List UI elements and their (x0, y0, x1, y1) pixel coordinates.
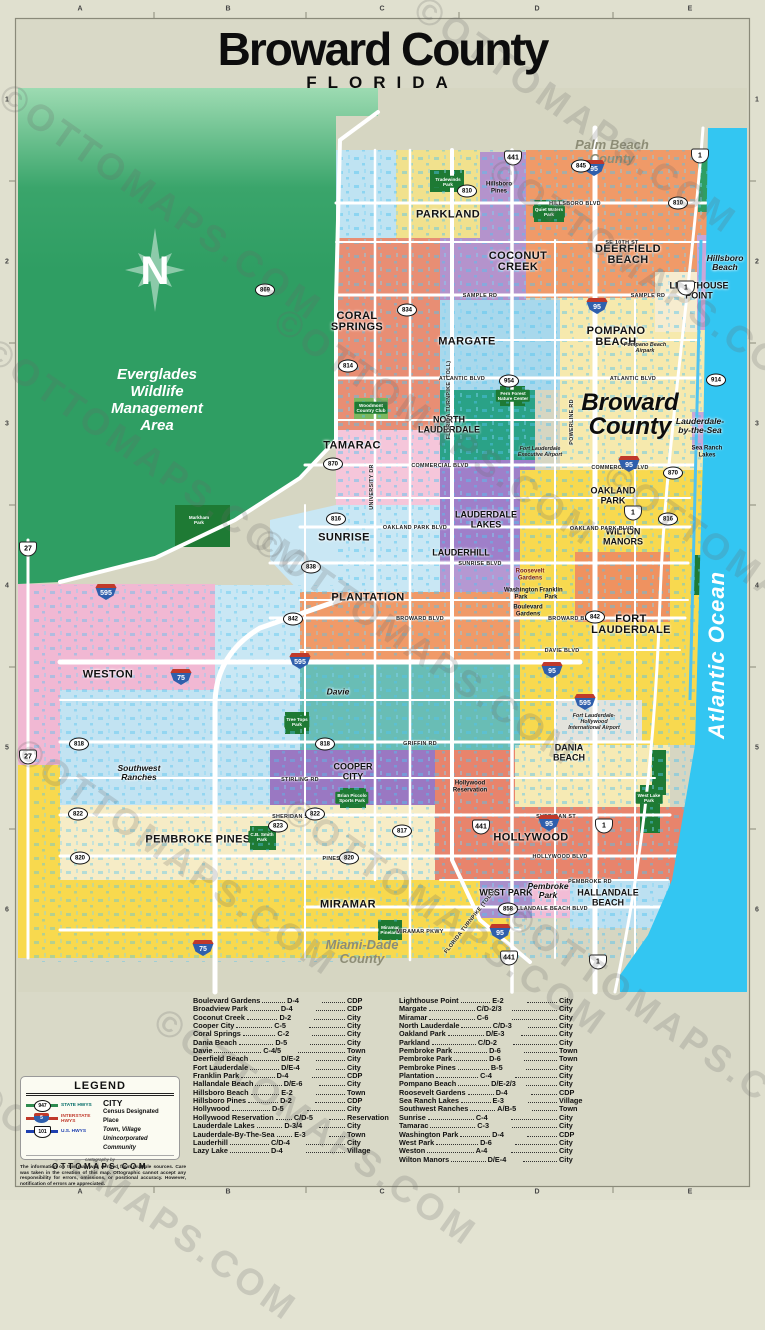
legend-road-types: 947 STATE HWYS 5 INTERSTATE HWYS 101 U.S… (26, 1099, 100, 1153)
page-subtitle: FLORIDA (0, 73, 765, 93)
legend-road-line: 5 (26, 1117, 58, 1120)
index-row: Boulevard Gardens D-4 CDP (193, 996, 393, 1004)
leader-dots (515, 1144, 557, 1145)
leader-dots (527, 1002, 557, 1003)
index-row: Southwest Ranches A/B-5 Town (399, 1104, 605, 1112)
leader-dots (511, 1119, 557, 1120)
leader-dots (513, 1044, 557, 1045)
index-row: Pembroke Park D-6 Town (399, 1054, 605, 1062)
leader-dots (241, 1077, 274, 1078)
leader-dots (432, 1044, 476, 1045)
leader-dots (436, 1077, 478, 1078)
leader-dots (312, 1035, 345, 1036)
leader-dots (528, 1027, 557, 1028)
leader-dots (512, 1019, 557, 1020)
leader-dots (461, 1027, 490, 1028)
highway-shield-icon: 5 (34, 1113, 49, 1123)
index-row: Hallandale Beach D/E-6 City (193, 1079, 393, 1087)
legend-road-line: 101 (26, 1130, 58, 1133)
leader-dots (329, 1119, 345, 1120)
leader-dots (436, 1144, 478, 1145)
leader-dots (276, 1119, 292, 1120)
leader-dots (515, 1077, 557, 1078)
leader-dots (230, 1152, 269, 1153)
leader-dots (451, 1161, 485, 1162)
leader-dots (531, 1094, 557, 1095)
legend-box: LEGEND 947 STATE HWYS 5 INTERSTATE HWYS (20, 1076, 180, 1160)
leader-dots (532, 1110, 557, 1111)
index-row: Sunrise C-4 City (399, 1113, 605, 1121)
legend-place-types: CITY Census Designated Place Town, Villa… (100, 1099, 174, 1153)
index-row: West Park D-6 City (399, 1138, 605, 1146)
leader-dots (319, 1127, 345, 1128)
index-row: Parkland C/D-2 City (399, 1038, 605, 1046)
leader-dots (512, 1010, 558, 1011)
leader-dots (310, 1044, 345, 1045)
leader-dots (454, 1060, 487, 1061)
leader-dots (526, 1069, 557, 1070)
leader-dots (309, 1027, 345, 1028)
index-row: Lazy Lake D-4 Village (193, 1146, 393, 1154)
leader-dots (429, 1010, 475, 1011)
leader-dots (248, 1102, 278, 1103)
legend-place-type: Census Designated Place (103, 1108, 174, 1126)
leader-dots (214, 1052, 261, 1053)
index-grid-ref: D/E-4 (488, 1155, 521, 1164)
legend-place-type: CITY (103, 1099, 174, 1108)
disclaimer-text: The information on this map was derived … (20, 1165, 186, 1188)
leader-dots (247, 1019, 278, 1020)
legend-road-row: 101 U.S. HWYS (26, 1125, 100, 1138)
index-row: Wilton Manors D/E-4 City (399, 1155, 605, 1163)
index-place-type: City (559, 1155, 605, 1164)
leader-dots (312, 1077, 345, 1078)
place-index-left: Boulevard Gardens D-4 CDP Broadview Park… (193, 996, 393, 1155)
legend-place-type: Unincorporated Community (103, 1135, 174, 1153)
leader-dots (316, 1069, 345, 1070)
index-row: Tamarac C-3 City (399, 1121, 605, 1129)
leader-dots (232, 1110, 270, 1111)
leader-dots (307, 1110, 345, 1111)
leader-dots (255, 1085, 281, 1086)
legend-road-label: INTERSTATE HWYS (61, 1114, 100, 1124)
legend-road-row: 947 STATE HWYS (26, 1099, 100, 1112)
index-row: Deerfield Beach D/E-2 City (193, 1054, 393, 1062)
index-row: Lauderhill C/D-4 City (193, 1138, 393, 1146)
leader-dots (250, 1060, 279, 1061)
leader-dots (454, 1052, 487, 1053)
leader-dots (277, 1136, 293, 1137)
leader-dots (306, 1144, 345, 1145)
index-row: Roosevelt Gardens D-4 CDP (399, 1088, 605, 1096)
leader-dots (511, 1152, 557, 1153)
leader-dots (428, 1119, 474, 1120)
leader-dots (523, 1161, 557, 1162)
legend-body: 947 STATE HWYS 5 INTERSTATE HWYS 101 U.S… (26, 1099, 174, 1153)
leader-dots (458, 1085, 489, 1086)
index-place-name: Wilton Manors (399, 1155, 449, 1164)
leader-dots (315, 1102, 345, 1103)
index-row: Miramar C-6 City (399, 1013, 605, 1021)
leader-dots (316, 1010, 345, 1011)
leader-dots (468, 1094, 494, 1095)
leader-dots (230, 1144, 269, 1145)
index-row: Pembroke Pines B-5 City (399, 1063, 605, 1071)
leader-dots (319, 1085, 345, 1086)
index-row: Broadview Park D-4 CDP (193, 1004, 393, 1012)
index-row: Coral Springs C-2 City (193, 1029, 393, 1037)
index-row: Hillsboro Beach E-2 Town (193, 1088, 393, 1096)
index-place-name: Lazy Lake (193, 1146, 228, 1155)
leader-dots (251, 1094, 280, 1095)
leader-dots (521, 1035, 557, 1036)
index-row: Pembroke Park D-6 Town (399, 1046, 605, 1054)
index-place-type: Village (347, 1146, 393, 1155)
leader-dots (461, 1102, 490, 1103)
index-row: Cooper City C-5 City (193, 1021, 393, 1029)
index-row: Plantation C-4 City (399, 1071, 605, 1079)
index-row: North Lauderdale C/D-3 City (399, 1021, 605, 1029)
legend-road-label: U.S. HWYS (61, 1129, 86, 1134)
leader-dots (316, 1060, 345, 1061)
leader-dots (524, 1060, 557, 1061)
texture-east (336, 150, 708, 960)
index-row: Hollywood D-5 City (193, 1104, 393, 1112)
leader-dots (528, 1102, 557, 1103)
leader-dots (526, 1085, 557, 1086)
leader-dots (298, 1052, 345, 1053)
leader-dots (427, 1152, 473, 1153)
index-row: Hollywood Reservation C/D-5 Reservation (193, 1113, 393, 1121)
index-row: Dania Beach D-5 City (193, 1038, 393, 1046)
legend-road-line: 947 (26, 1104, 58, 1107)
leader-dots (314, 1019, 345, 1020)
index-row: Fort Lauderdale D/E-4 City (193, 1063, 393, 1071)
leader-dots (430, 1127, 475, 1128)
highway-shield-icon: 947 (34, 1100, 51, 1112)
index-row: Margate C/D-2/3 City (399, 1004, 605, 1012)
leader-dots (250, 1010, 279, 1011)
index-row: Sea Ranch Lakes E-3 Village (399, 1096, 605, 1104)
index-row: Pompano Beach D/E-2/3 City (399, 1079, 605, 1087)
leader-dots (322, 1002, 345, 1003)
legend-place-type: Town, Village (103, 1126, 174, 1135)
index-row: Coconut Creek D-2 City (193, 1013, 393, 1021)
leader-dots (461, 1002, 491, 1003)
leader-dots (524, 1052, 557, 1053)
index-row: Lighthouse Point E-2 City (399, 996, 605, 1004)
leader-dots (329, 1136, 345, 1137)
compass-n-letter: N (141, 249, 170, 293)
leader-dots (236, 1027, 272, 1028)
index-row: Lauderdale Lakes D-3/4 City (193, 1121, 393, 1129)
leader-dots (262, 1002, 285, 1003)
page-title: Broward County (0, 26, 765, 72)
index-row: Washington Park D-4 CDP (399, 1130, 605, 1138)
map-poster: N Broward County FLORIDA Palm Beach Coun… (0, 0, 765, 1200)
index-row: Franklin Park D-4 CDP (193, 1071, 393, 1079)
highway-shield-icon: 101 (34, 1126, 51, 1138)
leader-dots (243, 1035, 276, 1036)
title-block: Broward County FLORIDA (0, 26, 765, 93)
leader-dots (239, 1044, 274, 1045)
index-row: Oakland Park D/E-3 City (399, 1029, 605, 1037)
index-row: Davie C-4/5 Town (193, 1046, 393, 1054)
leader-dots (316, 1094, 345, 1095)
leader-dots (458, 1069, 489, 1070)
legend-road-row: 5 INTERSTATE HWYS (26, 1112, 100, 1125)
leader-dots (250, 1069, 279, 1070)
leader-dots (448, 1035, 484, 1036)
index-grid-ref: D-4 (271, 1146, 304, 1155)
texture-west (30, 585, 336, 962)
index-row: Weston A-4 City (399, 1146, 605, 1154)
index-row: Lauderdale-By-The-Sea E-3 Town (193, 1130, 393, 1138)
place-index-right: Lighthouse Point E-2 City Margate C/D-2/… (399, 996, 605, 1163)
legend-road-label: STATE HWYS (61, 1103, 92, 1108)
leader-dots (306, 1152, 345, 1153)
leader-dots (460, 1136, 490, 1137)
leader-dots (527, 1136, 557, 1137)
legend-title: LEGEND (26, 1080, 174, 1096)
leader-dots (257, 1127, 283, 1128)
leader-dots (470, 1110, 495, 1111)
leader-dots (429, 1019, 474, 1020)
index-row: Hillsboro Pines D-2 CDP (193, 1096, 393, 1104)
leader-dots (512, 1127, 557, 1128)
